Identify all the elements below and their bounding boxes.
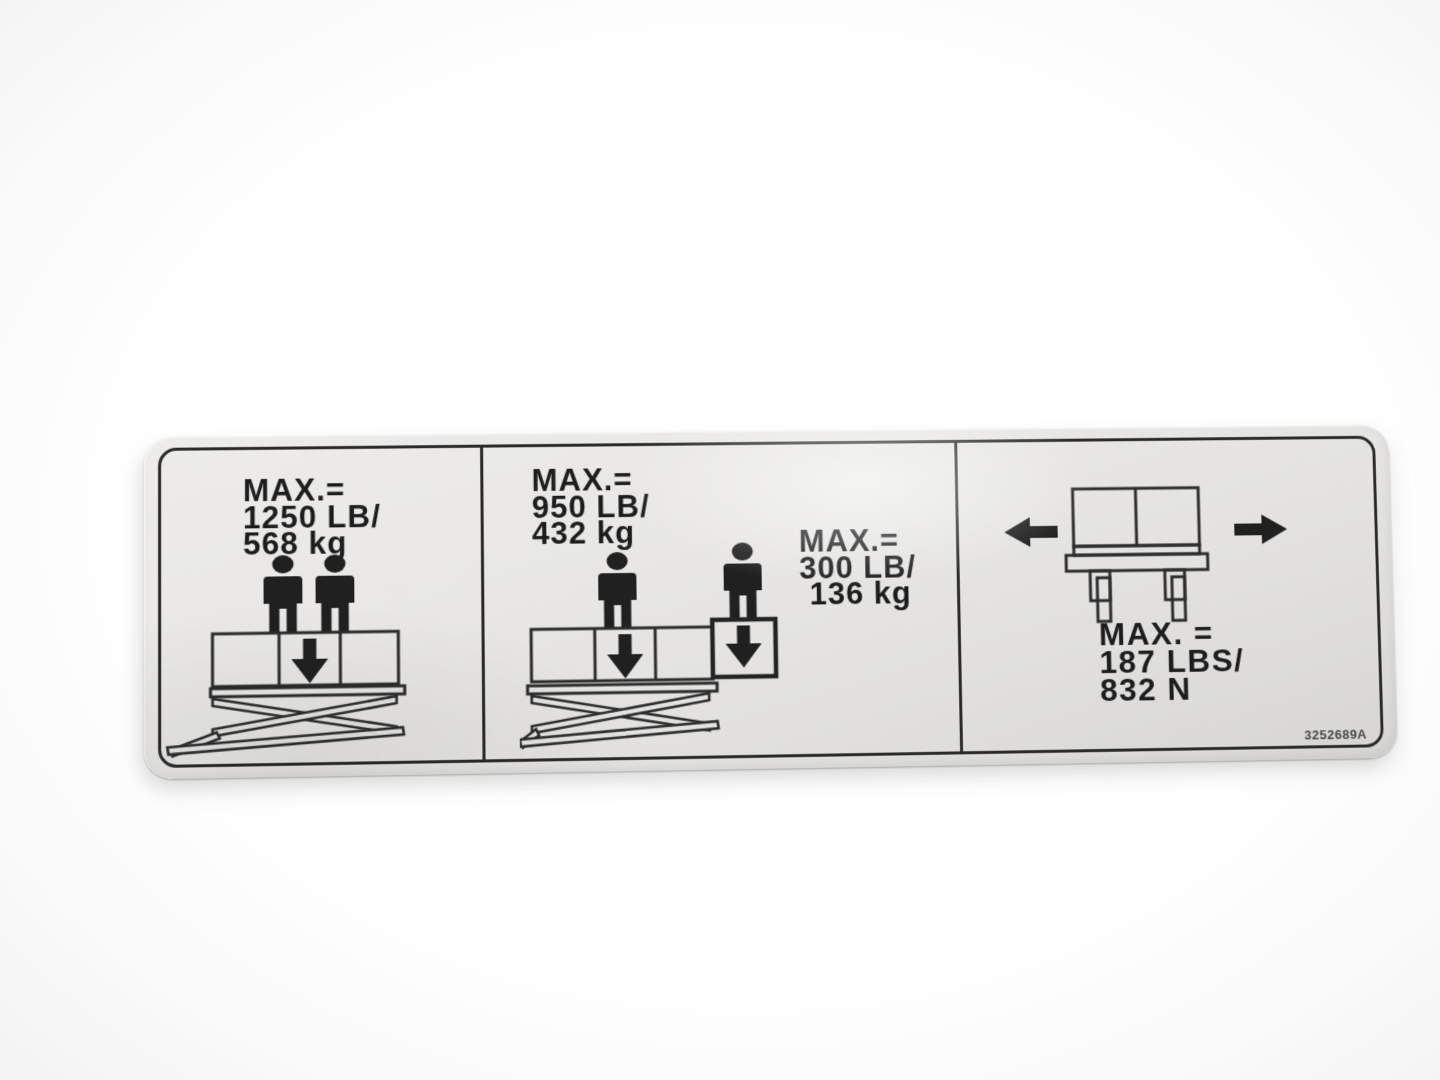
panel-platform-total-capacity: MAX.= 1250 LB/ 568 kg <box>161 448 485 765</box>
photo-backdrop: MAX.= 1250 LB/ 568 kg <box>0 0 1440 1080</box>
down-arrow-icon <box>725 625 762 668</box>
down-arrow-icon <box>291 638 328 683</box>
panel-extension-side-force: MAX. = 187 LBS/ 832 N 3252689A <box>957 439 1381 752</box>
right-arrow-icon <box>1233 514 1287 544</box>
scissor-lift-legs-icon <box>167 686 405 757</box>
total-capacity-text: MAX.= 1250 LB/ 568 kg <box>243 477 381 559</box>
persons-on-split-deck-pictogram <box>518 536 807 756</box>
part-number: 3252689A <box>1304 727 1367 743</box>
decal-border-frame: MAX.= 1250 LB/ 568 kg <box>158 436 1384 768</box>
person-icon <box>723 542 762 619</box>
down-arrow-icon <box>607 634 644 679</box>
two-persons-on-platform-pictogram <box>165 549 411 760</box>
platform-side-view-pictogram <box>997 483 1295 625</box>
person-icon <box>263 555 302 633</box>
side-force-text: MAX. = 187 LBS/ 832 N <box>1099 618 1246 704</box>
capacity-line: 136 kg <box>799 580 916 608</box>
panel-deck-split-capacity: MAX.= 950 LB/ 432 kg MAX.= 300 LB/ 136 k… <box>483 443 963 760</box>
capacity-decal-sticker: MAX.= 1250 LB/ 568 kg <box>144 425 1398 780</box>
platform-side-view-icon <box>1064 488 1209 622</box>
left-arrow-icon <box>1004 517 1058 547</box>
extension-deck-capacity-text: MAX.= 300 LB/ 136 kg <box>799 528 917 609</box>
main-deck-capacity-text: MAX.= 950 LB/ 432 kg <box>531 467 650 548</box>
person-icon <box>598 552 637 630</box>
scissor-lift-legs-icon <box>519 683 718 748</box>
capacity-line: 832 N <box>1100 674 1246 704</box>
person-icon <box>315 554 354 632</box>
